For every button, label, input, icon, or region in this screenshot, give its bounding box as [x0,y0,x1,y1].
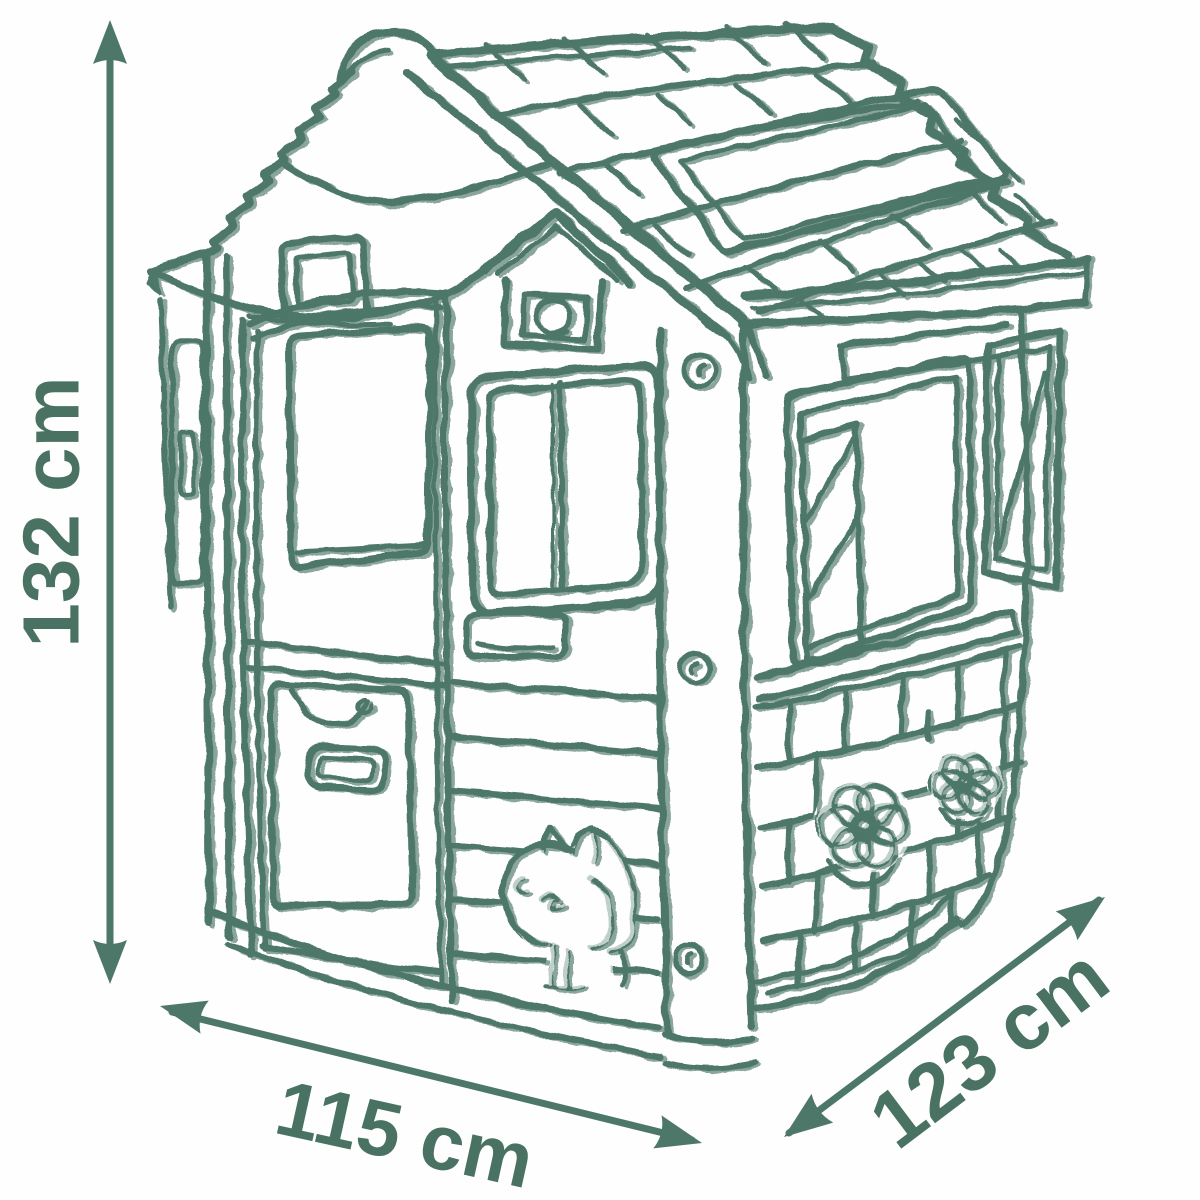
svg-text:132 cm: 132 cm [7,376,96,647]
